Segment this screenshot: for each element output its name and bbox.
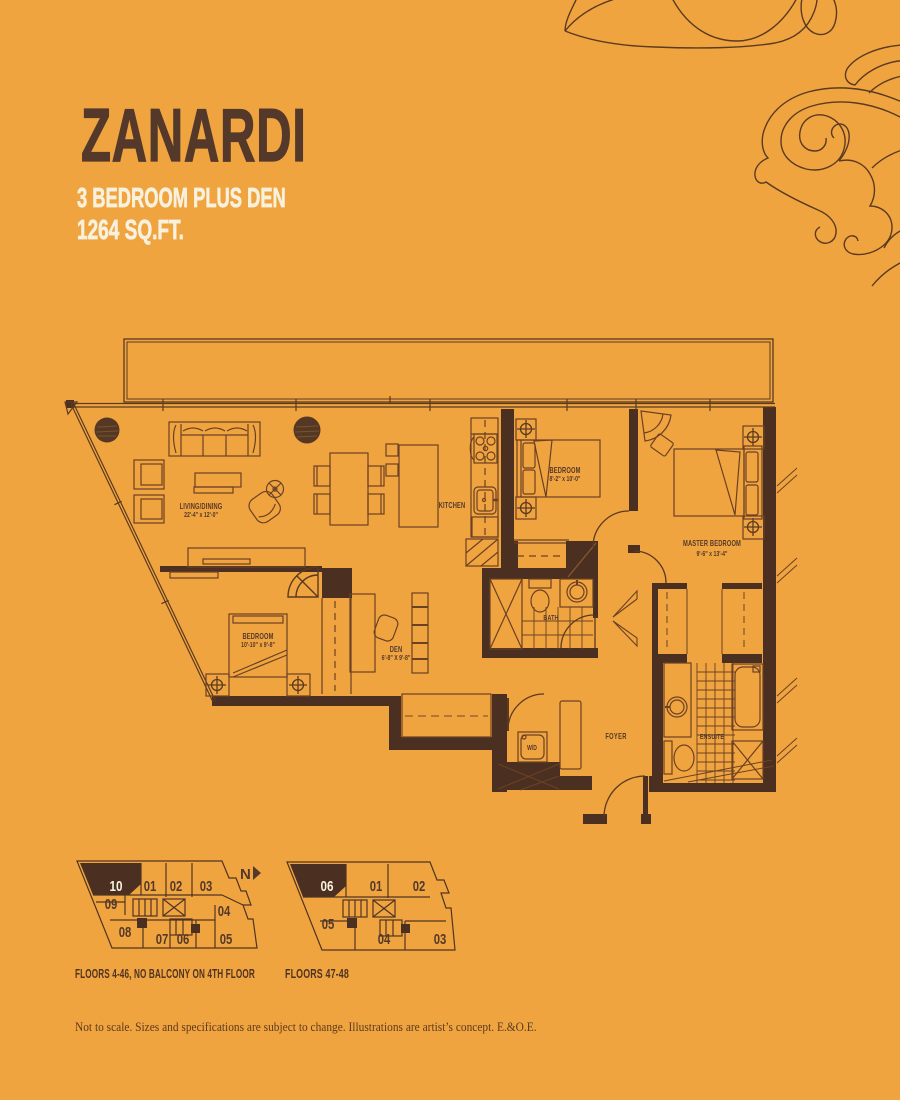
svg-text:N: N: [240, 866, 251, 883]
svg-text:W/D: W/D: [527, 744, 537, 752]
svg-text:DEN: DEN: [390, 646, 403, 654]
svg-text:MASTER BEDROOM: MASTER BEDROOM: [683, 540, 741, 548]
svg-text:3 BEDROOM PLUS DEN: 3 BEDROOM PLUS DEN: [77, 183, 286, 214]
svg-text:8'-2" x 10'-0": 8'-2" x 10'-0": [550, 475, 581, 483]
svg-text:01: 01: [144, 878, 157, 895]
svg-text:06: 06: [320, 878, 333, 895]
svg-text:FLOORS 4-46, NO BALCONY ON 4TH: FLOORS 4-46, NO BALCONY ON 4TH FLOOR: [75, 967, 255, 981]
svg-text:6'-8" X 9'-8": 6'-8" X 9'-8": [382, 654, 411, 662]
svg-text:BEDROOM: BEDROOM: [242, 633, 273, 641]
svg-text:9'-6" x 13'-4": 9'-6" x 13'-4": [697, 550, 728, 558]
svg-text:FLOORS 47-48: FLOORS 47-48: [285, 968, 349, 982]
svg-text:ZANARDI: ZANARDI: [81, 95, 307, 178]
svg-text:04: 04: [378, 931, 391, 948]
svg-text:BATH: BATH: [543, 614, 558, 622]
svg-text:05: 05: [322, 916, 335, 933]
svg-text:10: 10: [109, 878, 122, 895]
svg-text:07: 07: [156, 931, 169, 948]
svg-text:01: 01: [370, 878, 383, 895]
svg-text:09: 09: [105, 896, 118, 913]
svg-text:02: 02: [170, 878, 183, 895]
svg-text:Not to scale. Sizes and specif: Not to scale. Sizes and specifications a…: [75, 1020, 537, 1035]
svg-text:05: 05: [220, 931, 233, 948]
svg-text:03: 03: [200, 878, 213, 895]
svg-text:06: 06: [177, 931, 190, 948]
svg-text:1264 SQ.FT.: 1264 SQ.FT.: [77, 214, 184, 246]
svg-text:BEDROOM: BEDROOM: [549, 467, 580, 475]
svg-text:04: 04: [218, 903, 231, 920]
svg-text:KITCHEN: KITCHEN: [439, 502, 466, 510]
svg-text:02: 02: [413, 878, 426, 895]
svg-text:FOYER: FOYER: [605, 733, 626, 741]
svg-text:ENSUITE: ENSUITE: [700, 733, 725, 741]
svg-text:08: 08: [119, 924, 132, 941]
svg-text:03: 03: [434, 931, 447, 948]
svg-text:22'-4" x 12'-0": 22'-4" x 12'-0": [184, 511, 218, 519]
svg-text:LIVING/DINING: LIVING/DINING: [180, 503, 223, 511]
svg-text:10'-10" x 9'-8": 10'-10" x 9'-8": [241, 641, 275, 649]
